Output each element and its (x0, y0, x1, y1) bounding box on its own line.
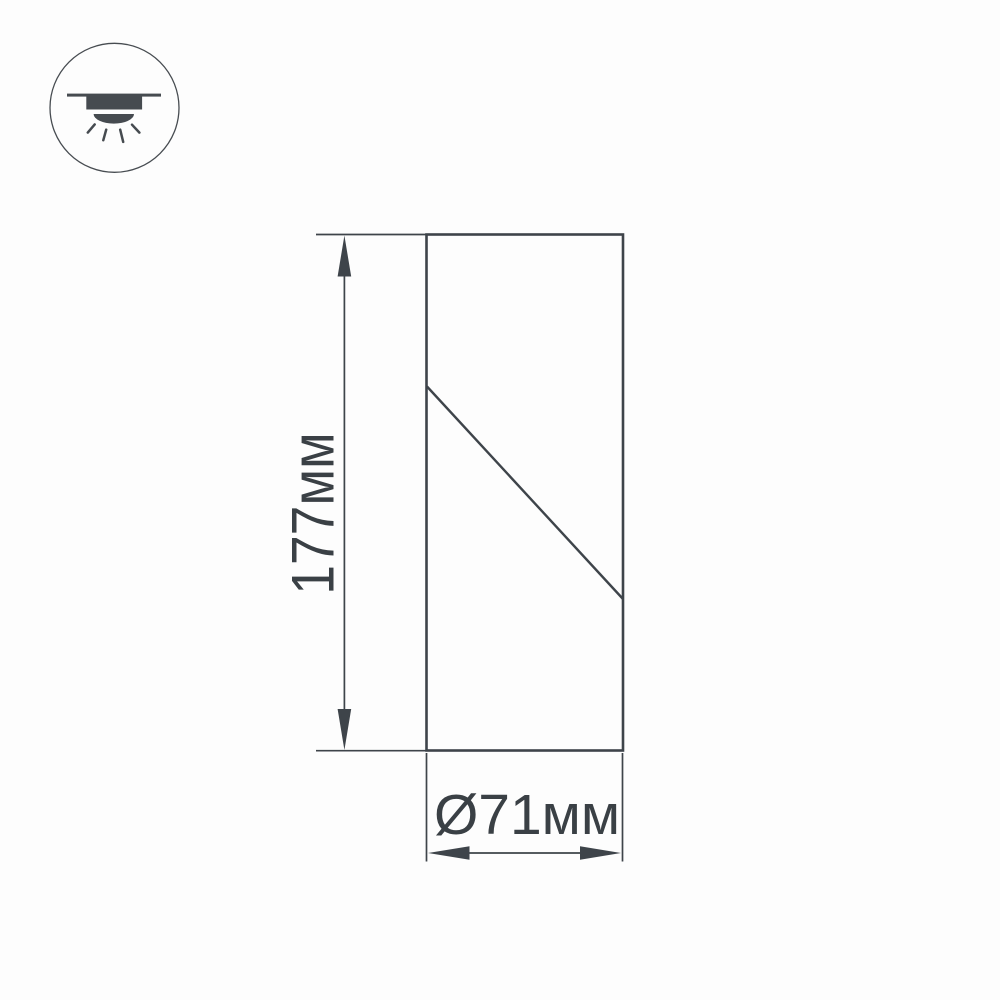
svg-text:177мм: 177мм (281, 432, 348, 594)
svg-text:Ø71мм: Ø71мм (434, 783, 620, 847)
